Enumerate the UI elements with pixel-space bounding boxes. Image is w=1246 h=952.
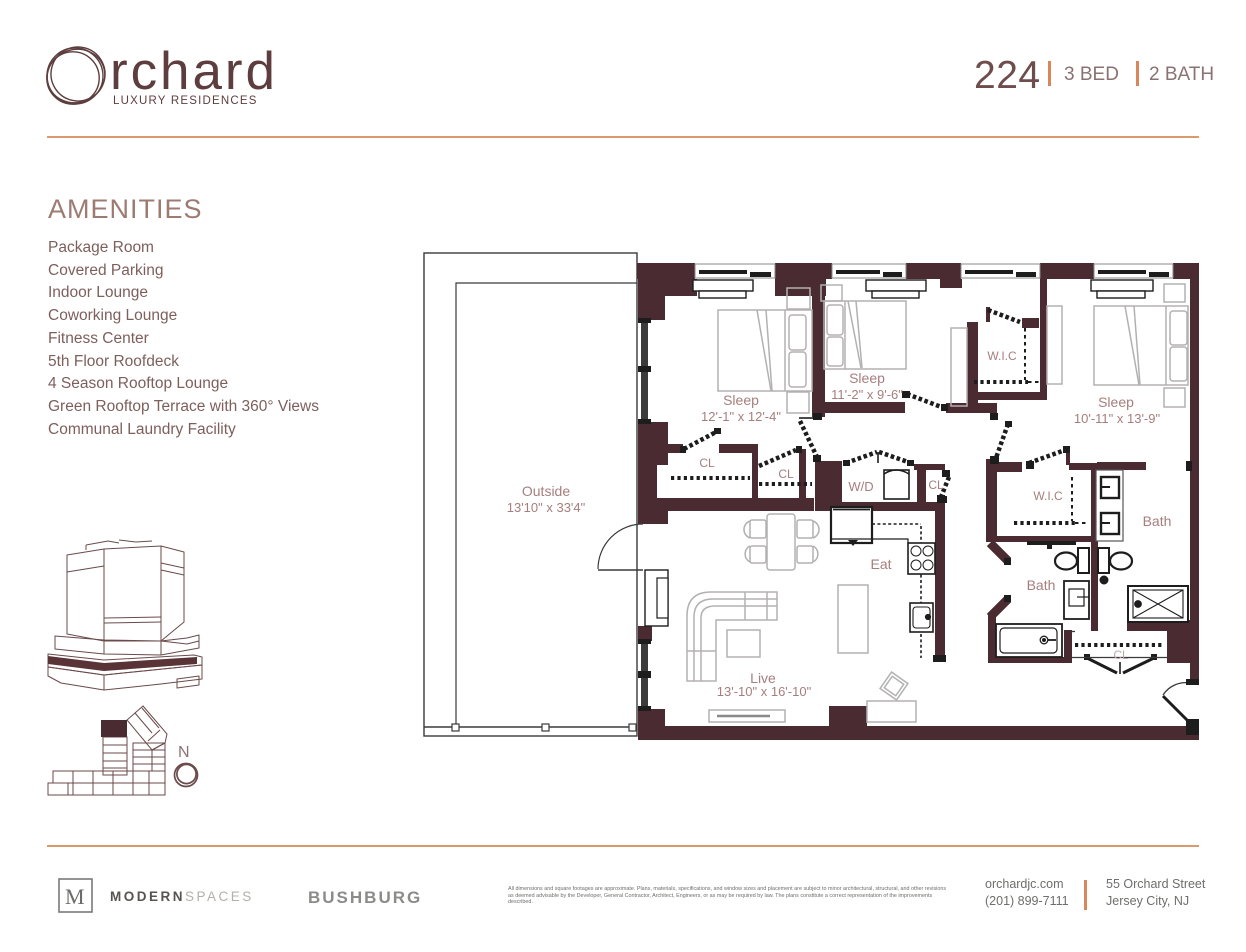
svg-text:Bath: Bath [1027, 577, 1056, 593]
svg-text:Eat: Eat [870, 556, 891, 572]
svg-text:11'-2" x 9'-6": 11'-2" x 9'-6" [831, 387, 903, 402]
svg-text:12'-1" x 12'-4": 12'-1" x 12'-4" [701, 409, 781, 424]
svg-text:Sleep: Sleep [849, 370, 885, 386]
svg-text:CL: CL [778, 467, 794, 481]
svg-text:10'-11" x 13'-9": 10'-11" x 13'-9" [1074, 411, 1161, 426]
svg-text:W.I.C: W.I.C [1033, 489, 1063, 503]
svg-text:CL: CL [928, 478, 944, 492]
svg-text:W.I.C: W.I.C [987, 349, 1017, 363]
svg-text:CL: CL [699, 456, 715, 470]
svg-text:Sleep: Sleep [723, 392, 759, 408]
svg-text:13'-10" x 16'-10": 13'-10" x 16'-10" [717, 684, 812, 699]
svg-text:W/D: W/D [848, 479, 873, 494]
svg-text:Bath: Bath [1143, 513, 1172, 529]
svg-text:M: M [65, 884, 85, 909]
svg-text:Sleep: Sleep [1098, 394, 1134, 410]
svg-text:13'10" x 33'4": 13'10" x 33'4" [507, 500, 586, 515]
svg-text:Outside: Outside [522, 483, 570, 499]
svg-text:CL: CL [1113, 648, 1129, 662]
